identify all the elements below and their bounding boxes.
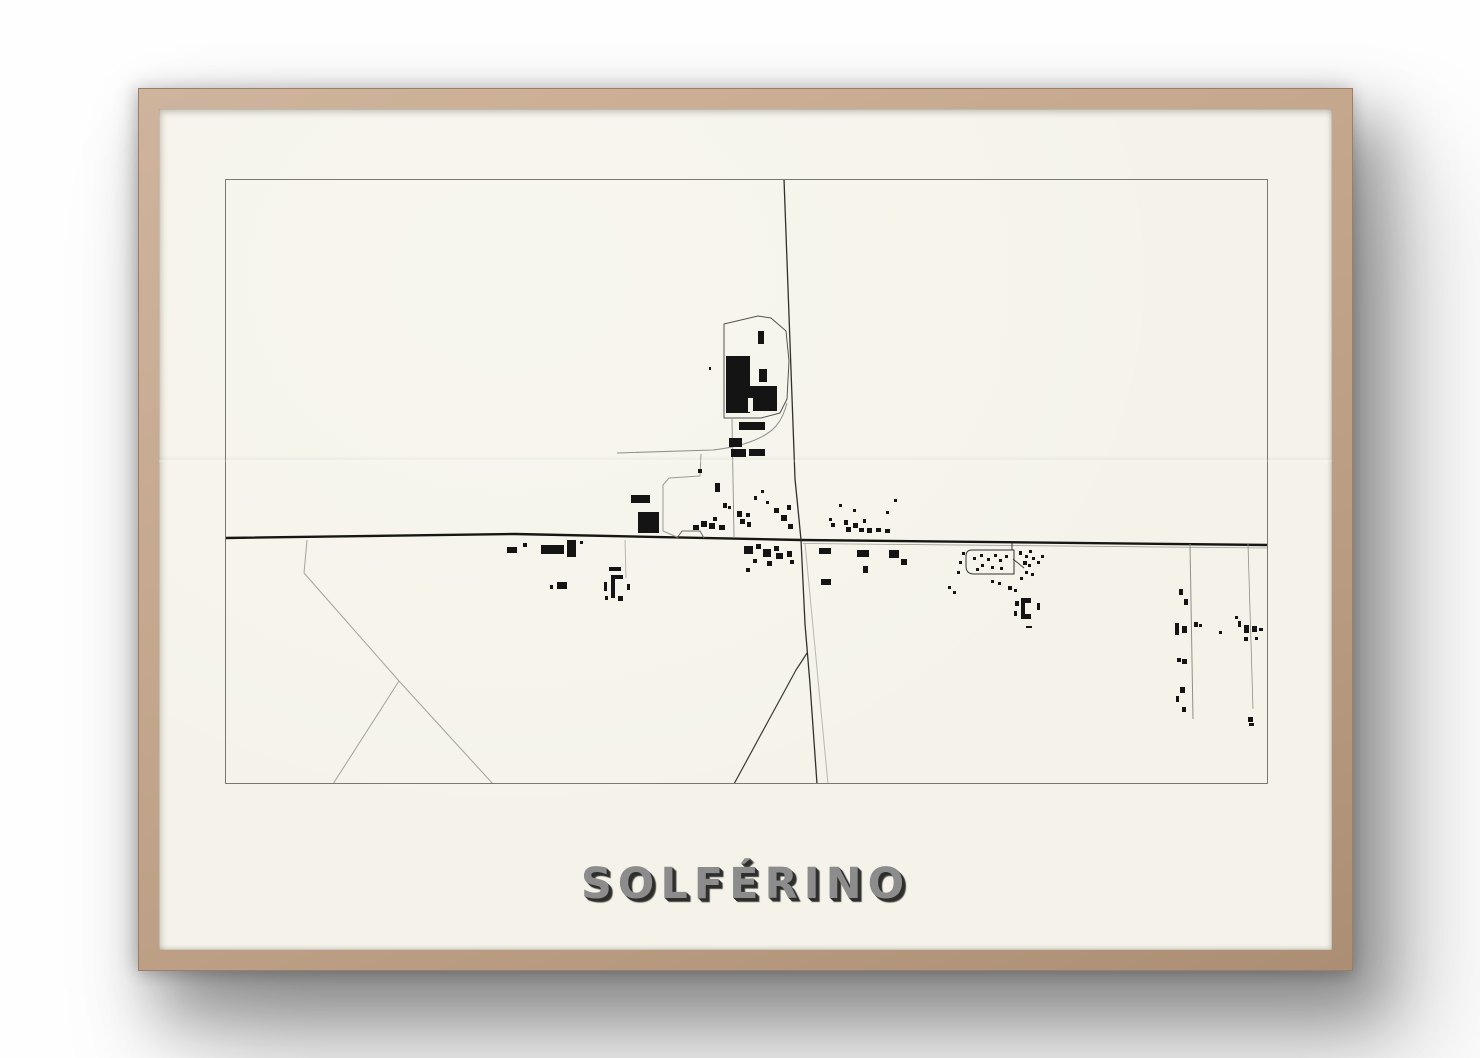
picture-frame: SOLFÉRINO [138,88,1353,971]
poster: SOLFÉRINO [159,109,1332,950]
map-outlines-group [226,180,1268,784]
map-building-gaps-group [748,398,753,412]
map-roads-group [225,179,1268,784]
poster-title: SOLFÉRINO [159,859,1332,909]
map-figure [225,179,1268,784]
map-buildings-group [507,331,1263,726]
map-svg [225,179,1268,784]
